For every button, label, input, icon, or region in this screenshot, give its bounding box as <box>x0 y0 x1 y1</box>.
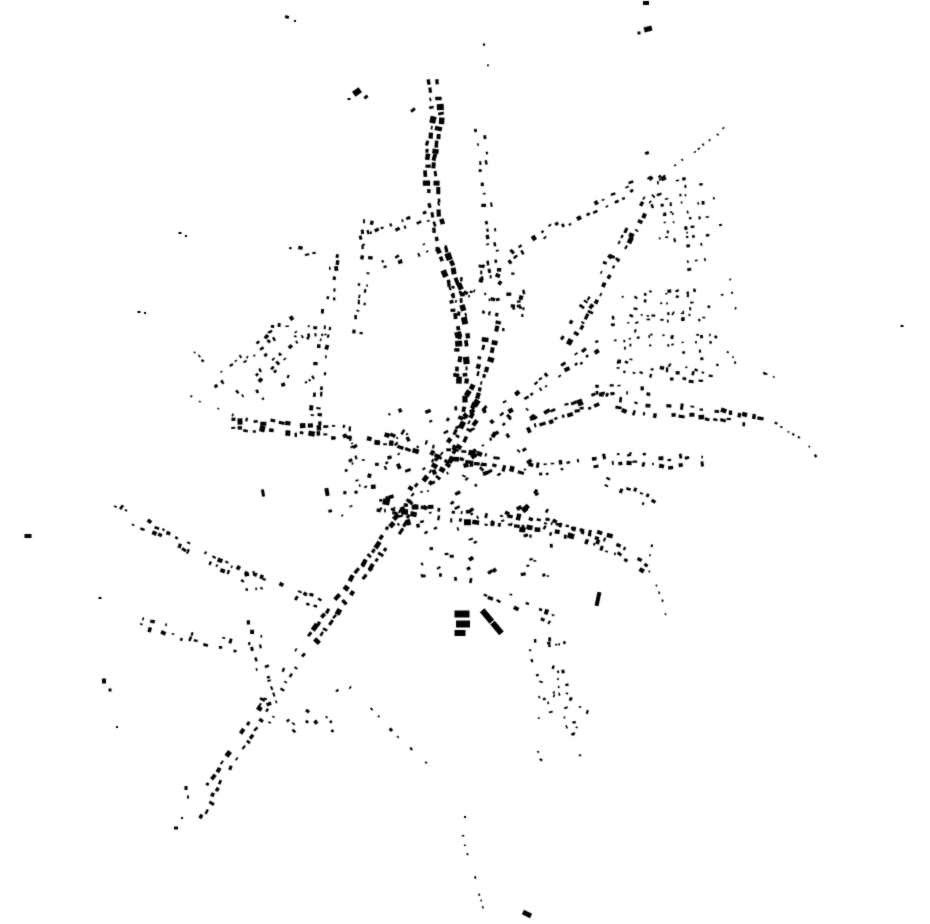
building-footprint-map-canvas <box>0 0 930 924</box>
building-footprint-map-page <box>0 0 930 924</box>
